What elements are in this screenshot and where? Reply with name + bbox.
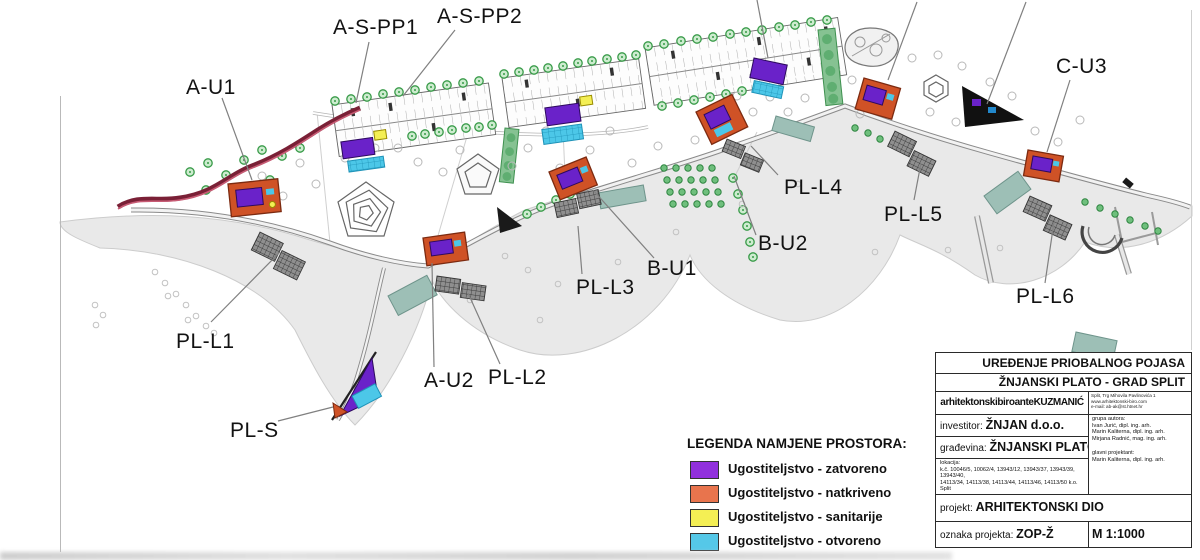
code-label: oznaka projekta: xyxy=(940,530,1013,541)
map-label-c-u3: C-U3 xyxy=(1056,55,1107,79)
pavilion-pentagon xyxy=(457,154,499,194)
location-line2: 14113/34, 14113/38, 14113/44, 14113/46, … xyxy=(940,480,1084,493)
building-row: građevina: ŽNJANSKI PLATO xyxy=(936,436,1088,458)
map-label-a-s-pp2: A-S-PP2 xyxy=(437,5,522,29)
project-label: projekt: xyxy=(940,503,973,514)
legend: LEGENDA NAMJENE PROSTORA: Ugostiteljstvo… xyxy=(687,436,927,555)
legend-swatch-sanitarije xyxy=(690,509,719,527)
legend-label: Ugostiteljstvo - sanitarije xyxy=(728,509,883,524)
investor-label: investitor: xyxy=(940,421,983,432)
map-label-a-u2: A-U2 xyxy=(424,369,474,393)
small-hexagon xyxy=(924,75,948,102)
spiral-mound xyxy=(338,182,394,236)
firm-address: Split, Trg Mihovila Pavlinovića 1 www.ar… xyxy=(1088,391,1191,414)
playground-blob xyxy=(845,28,898,66)
title-block-row2: ŽNJANSKI PLATO - GRAD SPLIT xyxy=(936,373,1191,391)
sheet-left-border xyxy=(60,96,61,552)
legend-item-sanitarije: Ugostiteljstvo - sanitarije xyxy=(687,507,927,531)
code-value: ZOP-Ž xyxy=(1016,527,1054,541)
lead-value: Marin Kaliterna, dipl. ing. arh. xyxy=(1092,457,1187,464)
map-label-pl-l2: PL-L2 xyxy=(488,366,547,390)
location-line1: k.č. 10046/5, 10062/4, 13943/12, 13943/3… xyxy=(940,467,1084,480)
investor-row: investitor: ŽNJAN d.o.o. xyxy=(936,414,1088,436)
map-label-pl-l6: PL-L6 xyxy=(1016,285,1075,309)
legend-swatch-otvoreno xyxy=(690,533,719,551)
author-1: Ivan Jurić, dipl. ing. arh. xyxy=(1092,423,1187,430)
project-row: projekt: ARHITEKTONSKI DIO xyxy=(936,494,1191,521)
legend-item-natkriveno: Ugostiteljstvo - natkriveno xyxy=(687,483,927,507)
location-cell: lokacija: k.č. 10046/5, 10062/4, 13943/1… xyxy=(936,458,1088,494)
sheet: A-U1 A-S-PP1 A-S-PP2 C-U3 PL-L4 PL-L5 B-… xyxy=(0,0,1200,560)
map-label-pl-l5: PL-L5 xyxy=(884,203,943,227)
legend-label: Ugostiteljstvo - zatvoreno xyxy=(728,461,887,476)
map-label-pl-l1: PL-L1 xyxy=(176,330,235,354)
map-label-b-u2: B-U2 xyxy=(758,232,808,256)
building-label: građevina: xyxy=(940,443,987,454)
map-label-a-s-pp1: A-S-PP1 xyxy=(333,16,418,40)
map-label-pl-l3: PL-L3 xyxy=(576,276,635,300)
authors-cell: grupa autora: Ivan Jurić, dipl. ing. arh… xyxy=(1088,414,1191,494)
location-label: lokacija: xyxy=(940,460,1084,467)
scale-value: M 1:1000 xyxy=(1092,527,1145,541)
legend-label: Ugostiteljstvo - natkriveno xyxy=(728,485,891,500)
legend-swatch-zatvoreno xyxy=(690,461,719,479)
scale-cell: M 1:1000 xyxy=(1088,521,1191,548)
building-value: ŽNJANSKI PLATO xyxy=(989,440,1088,454)
legend-title: LEGENDA NAMJENE PROSTORA: xyxy=(687,436,927,451)
building-b-u2 xyxy=(696,94,748,144)
map-label-pl-s: PL-S xyxy=(230,419,279,443)
lead-label: glavni projektant: xyxy=(1092,450,1187,457)
map-label-b-u1: B-U1 xyxy=(647,257,697,281)
legend-swatch-natkriveno xyxy=(690,485,719,503)
building-a-u1 xyxy=(228,179,281,217)
project-value: ARHITEKTONSKI DIO xyxy=(976,500,1104,514)
code-row: oznaka projekta: ZOP-Ž xyxy=(936,521,1088,548)
map-label-a-u1: A-U1 xyxy=(186,76,236,100)
authors-label: grupa autora: xyxy=(1092,416,1187,423)
author-3: Mirjana Radnić, mag. ing. arh. xyxy=(1092,436,1187,443)
building-c-u3 xyxy=(1023,150,1063,182)
cluster-a-s-3 xyxy=(747,58,788,99)
title-block: UREĐENJE PRIOBALNOG POJASA ŽNJANSKI PLAT… xyxy=(935,352,1192,548)
map-label-pl-l4: PL-L4 xyxy=(784,176,843,200)
legend-label: Ugostiteljstvo - otvoreno xyxy=(728,533,881,548)
sheet-right-border xyxy=(1191,10,1192,350)
title-block-row1: UREĐENJE PRIOBALNOG POJASA xyxy=(936,353,1191,373)
author-2: Marin Kaliterna, dipl. ing. arh. xyxy=(1092,429,1187,436)
building-a-u2 xyxy=(423,232,468,266)
bottom-edge-artifact xyxy=(0,552,952,560)
legend-item-zatvoreno: Ugostiteljstvo - zatvoreno xyxy=(687,459,927,483)
firm-logo: arhitektonskibiroanteKUZMANIĆ xyxy=(936,391,1088,414)
building-c-wedge xyxy=(962,86,1024,127)
investor-value: ŽNJAN d.o.o. xyxy=(986,418,1064,432)
